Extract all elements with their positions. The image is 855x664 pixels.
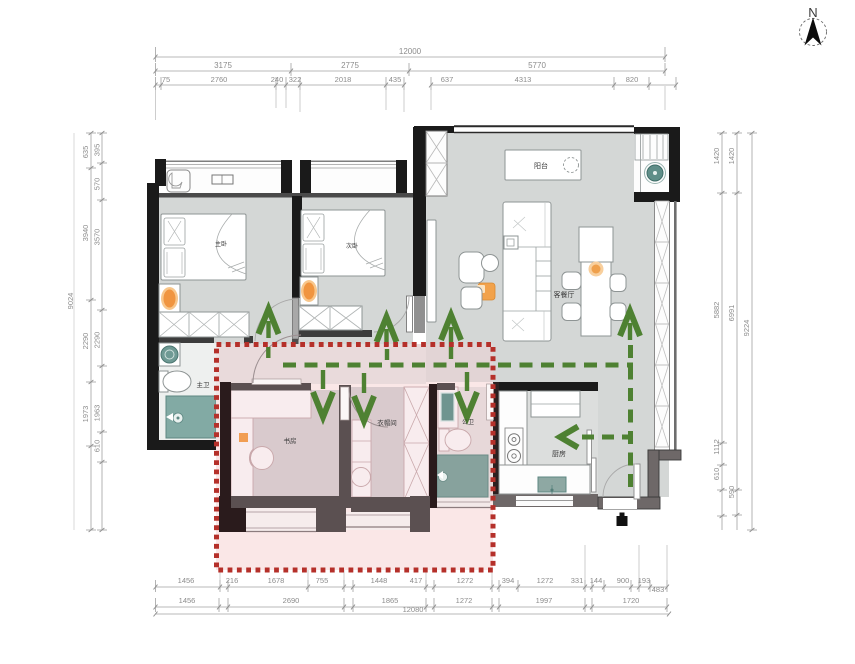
svg-text:1456: 1456 [179,596,196,605]
svg-text:1420: 1420 [712,148,721,165]
svg-text:144: 144 [590,576,603,585]
svg-text:635: 635 [81,146,90,159]
svg-text:1420: 1420 [727,148,736,165]
svg-text:12000: 12000 [399,47,422,56]
svg-text:435: 435 [389,75,402,84]
svg-text:1272: 1272 [456,596,473,605]
svg-text:6991: 6991 [727,305,736,322]
svg-text:610: 610 [712,468,721,481]
svg-text:2690: 2690 [283,596,300,605]
svg-text:193: 193 [638,576,651,585]
svg-text:637: 637 [441,75,454,84]
svg-text:2760: 2760 [211,75,228,84]
svg-text:417: 417 [410,576,423,585]
svg-text:570: 570 [93,178,102,191]
svg-text:1865: 1865 [382,596,399,605]
svg-text:12080: 12080 [403,605,424,614]
svg-text:5882: 5882 [712,302,721,319]
svg-text:1997: 1997 [536,596,553,605]
svg-text:1272: 1272 [537,576,554,585]
svg-text:610: 610 [93,440,102,453]
svg-text:1112: 1112 [712,439,721,455]
svg-text:394: 394 [502,576,515,585]
svg-text:公卫: 公卫 [462,419,474,426]
svg-text:1448: 1448 [371,576,388,585]
svg-text:483: 483 [652,585,665,594]
svg-text:客餐厅: 客餐厅 [554,290,575,299]
svg-text:900: 900 [617,576,630,585]
svg-text:3175: 3175 [214,61,232,70]
svg-text:331: 331 [571,576,584,585]
svg-text:1456: 1456 [178,576,195,585]
svg-text:衣帽间: 衣帽间 [377,418,397,427]
svg-text:3570: 3570 [93,229,102,246]
svg-text:3940: 3940 [81,225,90,242]
svg-text:395: 395 [93,144,102,157]
svg-text:5770: 5770 [528,61,546,70]
svg-text:1272: 1272 [457,576,474,585]
svg-text:590: 590 [727,486,736,499]
svg-text:1973: 1973 [81,406,90,423]
svg-text:书房: 书房 [284,436,297,445]
svg-text:主卧: 主卧 [215,240,227,248]
svg-text:4313: 4313 [515,75,532,84]
svg-text:820: 820 [626,75,639,84]
svg-text:2290: 2290 [81,333,90,350]
svg-text:1678: 1678 [268,576,285,585]
svg-text:216: 216 [226,576,239,585]
svg-text:主卫: 主卫 [197,380,211,389]
svg-text:75: 75 [162,75,170,84]
svg-text:次卧: 次卧 [346,242,358,250]
svg-text:9224: 9224 [742,320,751,337]
svg-text:1720: 1720 [623,596,640,605]
svg-text:240: 240 [271,75,284,84]
svg-text:厨房: 厨房 [552,449,566,458]
svg-text:2775: 2775 [341,61,359,70]
svg-text:阳台: 阳台 [534,161,548,170]
svg-text:2018: 2018 [335,75,352,84]
svg-text:9024: 9024 [66,293,75,310]
svg-text:322: 322 [289,75,302,84]
svg-text:2290: 2290 [93,332,102,349]
svg-text:1963: 1963 [93,405,102,422]
svg-text:755: 755 [316,576,329,585]
